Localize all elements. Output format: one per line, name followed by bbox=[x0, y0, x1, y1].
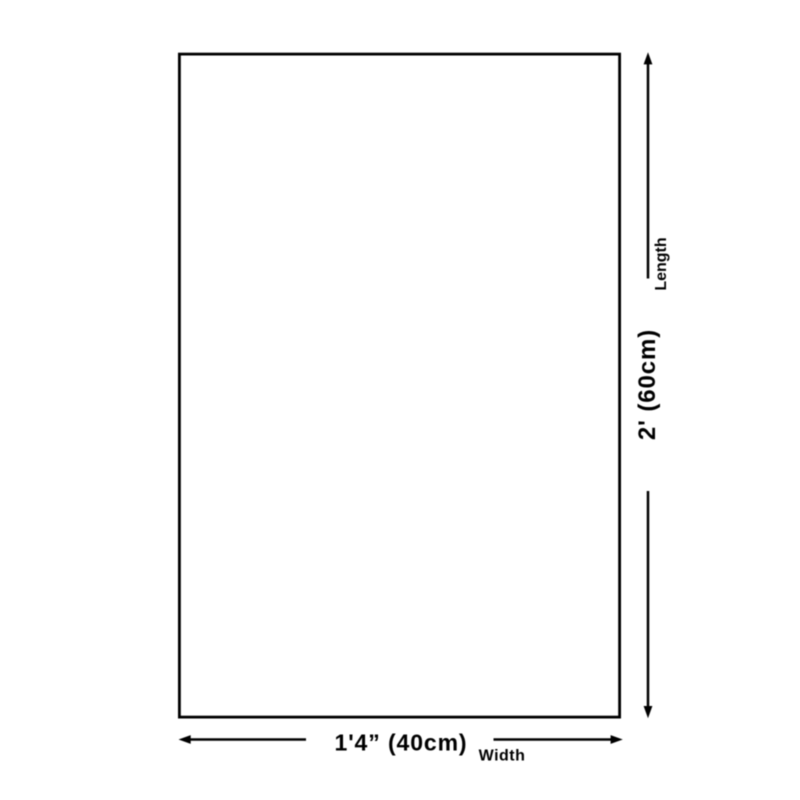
svg-text:Length: Length bbox=[653, 237, 670, 290]
svg-text:2' (60cm): 2' (60cm) bbox=[634, 329, 661, 440]
svg-text:1'4” (40cm): 1'4” (40cm) bbox=[335, 729, 468, 755]
svg-text:Width: Width bbox=[479, 748, 526, 765]
